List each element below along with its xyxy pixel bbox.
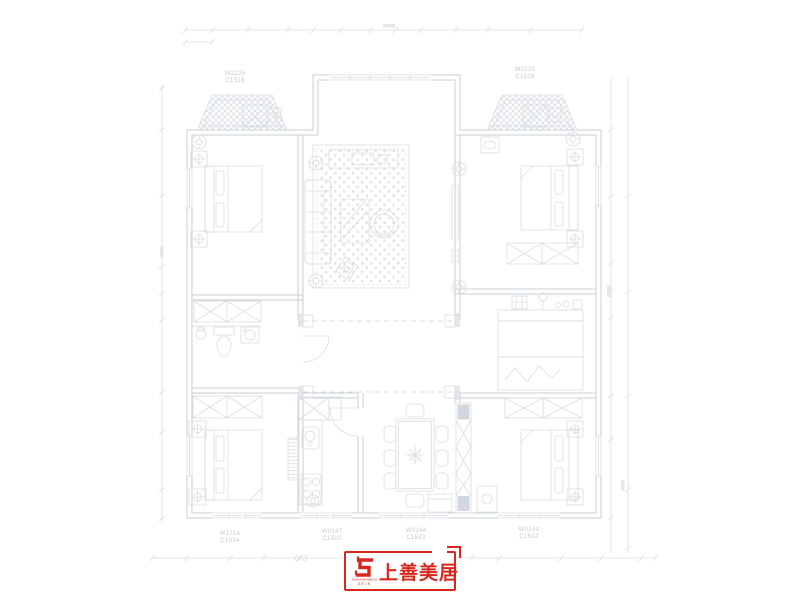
study bbox=[498, 293, 583, 390]
window-code-label-bottom-left: W1714 C1514 bbox=[207, 531, 253, 545]
bay-window-left bbox=[197, 95, 287, 130]
bay-window-right bbox=[487, 95, 577, 130]
window-code-line: C1518 bbox=[212, 78, 258, 85]
window-code-line: W0143 bbox=[506, 527, 552, 534]
logo-brand-text: 上善美居 bbox=[379, 558, 459, 585]
window-code-label-top-left: W2225 C1518 bbox=[212, 71, 258, 85]
logo-caption-text: 装 饰 工 程 bbox=[358, 583, 370, 586]
bedroom-bottom-left bbox=[189, 396, 262, 505]
bedroom-top-right bbox=[481, 132, 583, 264]
bedroom-bottom-right bbox=[477, 398, 583, 512]
window-code-line: C1502 bbox=[309, 536, 355, 543]
floor-plan-canvas: W2225 C1518 W2225 C1518 W1714 C1514 W014… bbox=[0, 0, 800, 600]
brand-logo: SHANGSHANMEIJU 装 饰 工 程 上善美居 bbox=[344, 551, 456, 591]
logo-frame-notch bbox=[432, 549, 447, 553]
floor-plan-drawing bbox=[0, 0, 800, 600]
window-code-line: W2225 bbox=[212, 71, 258, 78]
logo-latin-text: SHANGSHANMEIJU bbox=[351, 579, 377, 581]
dining-room bbox=[384, 403, 471, 513]
window-code-label-dining: W0144 C1543 bbox=[393, 528, 439, 542]
hallway bbox=[303, 315, 455, 507]
window-code-line: C1543 bbox=[393, 535, 439, 542]
logo-s-glyph-icon bbox=[351, 555, 377, 579]
window-code-line: W2225 bbox=[502, 67, 548, 74]
logo-s-mark: SHANGSHANMEIJU 装 饰 工 程 bbox=[349, 555, 379, 588]
window-code-line: W1714 bbox=[207, 531, 253, 538]
bathroom bbox=[192, 301, 329, 362]
living-room bbox=[305, 145, 466, 294]
window-code-line: W0147 bbox=[309, 529, 355, 536]
logo-content: SHANGSHANMEIJU 装 饰 工 程 上善美居 bbox=[349, 554, 452, 588]
window-code-line: C1514 bbox=[207, 538, 253, 545]
exterior-windows bbox=[185, 74, 603, 519]
bedroom-top-left bbox=[191, 135, 262, 247]
window-code-line: C1518 bbox=[502, 74, 548, 81]
window-code-label-top-right: W2225 C1518 bbox=[502, 67, 548, 81]
window-code-line: C1502 bbox=[506, 534, 552, 541]
window-code-line: W0144 bbox=[393, 528, 439, 535]
window-code-label-bottom-right: W0143 C1502 bbox=[506, 527, 552, 541]
window-code-label-kitchen: W0147 C1502 bbox=[309, 529, 355, 543]
